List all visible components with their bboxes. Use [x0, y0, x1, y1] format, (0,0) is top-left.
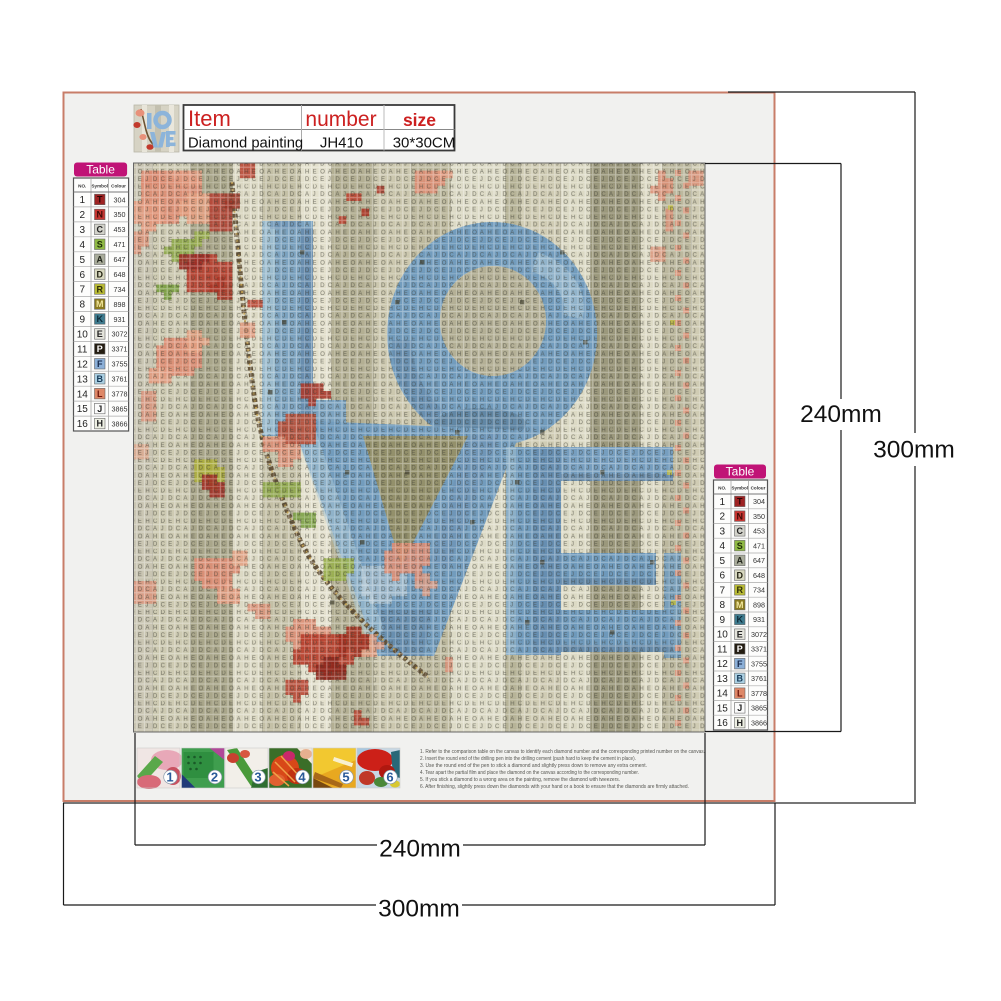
- svg-text:931: 931: [753, 615, 765, 624]
- svg-text:350: 350: [114, 210, 126, 219]
- svg-text:7: 7: [719, 585, 725, 596]
- svg-text:E: E: [737, 629, 743, 639]
- svg-text:Colour: Colour: [111, 184, 126, 189]
- svg-text:R: R: [737, 585, 744, 595]
- svg-text:647: 647: [114, 255, 126, 264]
- svg-text:3: 3: [254, 770, 261, 785]
- svg-text:F: F: [737, 659, 743, 669]
- svg-text:P: P: [737, 644, 743, 654]
- svg-text:16: 16: [717, 718, 729, 729]
- svg-text:4: 4: [719, 541, 725, 552]
- svg-text:N: N: [97, 210, 104, 220]
- svg-text:5: 5: [719, 556, 725, 567]
- svg-text:898: 898: [753, 600, 765, 609]
- svg-text:13: 13: [717, 674, 729, 685]
- svg-text:304: 304: [753, 497, 765, 506]
- svg-text:A: A: [737, 556, 744, 566]
- svg-text:size: size: [403, 110, 436, 130]
- svg-text:K: K: [737, 615, 744, 625]
- svg-text:30*30CM: 30*30CM: [393, 135, 456, 152]
- svg-text:NO.: NO.: [78, 184, 86, 189]
- svg-text:3: 3: [719, 526, 725, 537]
- svg-text:14: 14: [77, 389, 89, 400]
- svg-text:471: 471: [114, 240, 126, 249]
- svg-text:B: B: [737, 674, 744, 684]
- svg-text:647: 647: [753, 556, 765, 565]
- svg-text:3072: 3072: [751, 630, 767, 639]
- svg-text:number: number: [305, 108, 376, 131]
- svg-text:3755: 3755: [112, 360, 128, 369]
- svg-text:D: D: [737, 570, 744, 580]
- svg-text:3866: 3866: [112, 419, 128, 428]
- svg-text:3866: 3866: [751, 718, 767, 727]
- svg-text:P: P: [97, 344, 103, 354]
- svg-text:M: M: [96, 299, 104, 309]
- svg-text:931: 931: [114, 315, 126, 324]
- svg-text:J: J: [97, 404, 102, 414]
- svg-text:3761: 3761: [751, 674, 767, 683]
- svg-text:3778: 3778: [112, 389, 128, 398]
- svg-text:12: 12: [717, 659, 729, 670]
- svg-text:D: D: [97, 269, 104, 279]
- svg-text:3. Use the round end of the pe: 3. Use the round end of the pen to stick…: [420, 763, 647, 769]
- svg-text:S: S: [97, 239, 103, 249]
- svg-text:13: 13: [77, 374, 89, 385]
- svg-text:6. After finishing, slightly p: 6. After finishing, slightly press down …: [420, 784, 689, 790]
- svg-text:9: 9: [79, 315, 85, 326]
- svg-text:734: 734: [753, 586, 765, 595]
- svg-text:3371: 3371: [751, 645, 767, 654]
- svg-text:N: N: [737, 511, 744, 521]
- svg-text:3072: 3072: [112, 330, 128, 339]
- svg-text:C: C: [97, 225, 104, 235]
- svg-text:9: 9: [719, 615, 725, 626]
- svg-text:2: 2: [79, 210, 85, 221]
- svg-text:1: 1: [719, 497, 725, 508]
- svg-text:3865: 3865: [751, 704, 767, 713]
- svg-text:4. Tear apart the partial film: 4. Tear apart the partial film and place…: [420, 770, 639, 776]
- svg-text:648: 648: [753, 571, 765, 580]
- svg-text:NO.: NO.: [718, 486, 726, 491]
- svg-text:300mm: 300mm: [873, 437, 955, 464]
- svg-text:Symbol: Symbol: [91, 184, 108, 189]
- svg-text:1: 1: [166, 770, 173, 785]
- svg-text:14: 14: [717, 689, 729, 700]
- svg-text:T: T: [97, 195, 103, 205]
- svg-text:15: 15: [717, 703, 729, 714]
- svg-text:12: 12: [77, 359, 89, 370]
- svg-text:11: 11: [77, 344, 88, 355]
- svg-text:1: 1: [79, 195, 85, 206]
- svg-text:648: 648: [114, 270, 126, 279]
- svg-text:240mm: 240mm: [800, 401, 882, 428]
- svg-text:10: 10: [77, 330, 89, 341]
- svg-text:B: B: [97, 374, 104, 384]
- svg-text:5: 5: [342, 770, 349, 785]
- svg-text:T: T: [737, 497, 743, 507]
- svg-text:K: K: [97, 314, 104, 324]
- svg-text:6: 6: [719, 571, 725, 582]
- svg-text:8: 8: [719, 600, 725, 611]
- svg-text:R: R: [97, 284, 104, 294]
- svg-text:2. Insert the round end of the: 2. Insert the round end of the drilling …: [420, 756, 636, 762]
- svg-text:6: 6: [79, 270, 85, 281]
- svg-text:10: 10: [717, 630, 729, 641]
- svg-text:3761: 3761: [112, 375, 128, 384]
- svg-text:3371: 3371: [112, 345, 128, 354]
- svg-text:453: 453: [753, 527, 765, 536]
- svg-text:304: 304: [114, 195, 126, 204]
- svg-text:16: 16: [77, 419, 89, 430]
- svg-text:Table: Table: [86, 163, 115, 177]
- svg-text:H: H: [97, 419, 104, 429]
- svg-text:4: 4: [79, 240, 85, 251]
- svg-text:3778: 3778: [751, 689, 767, 698]
- svg-text:7: 7: [79, 285, 85, 296]
- svg-text:3: 3: [79, 225, 85, 236]
- svg-text:5: 5: [79, 255, 85, 266]
- svg-text:8: 8: [79, 300, 85, 311]
- svg-text:S: S: [737, 541, 743, 551]
- svg-text:3755: 3755: [751, 659, 767, 668]
- svg-text:C: C: [737, 526, 744, 536]
- svg-text:5. If you stick a diamond to a: 5. If you stick a diamond to a wrong are…: [420, 777, 620, 783]
- svg-text:M: M: [736, 600, 744, 610]
- svg-text:11: 11: [717, 644, 728, 655]
- svg-text:453: 453: [114, 225, 126, 234]
- svg-text:350: 350: [753, 512, 765, 521]
- svg-text:H: H: [737, 718, 744, 728]
- svg-text:Item: Item: [188, 106, 231, 131]
- svg-text:L: L: [97, 389, 103, 399]
- svg-text:2: 2: [719, 512, 725, 523]
- svg-text:L: L: [737, 688, 743, 698]
- svg-text:898: 898: [114, 300, 126, 309]
- svg-text:4: 4: [298, 770, 306, 785]
- svg-text:Colour: Colour: [751, 486, 766, 491]
- svg-text:Table: Table: [726, 465, 755, 479]
- svg-text:F: F: [97, 359, 103, 369]
- svg-text:240mm: 240mm: [379, 836, 461, 863]
- svg-text:Symbol: Symbol: [731, 486, 748, 491]
- svg-text:Diamond painting: Diamond painting: [188, 136, 303, 152]
- svg-text:J: J: [737, 703, 742, 713]
- svg-text:471: 471: [753, 541, 765, 550]
- svg-text:300mm: 300mm: [378, 896, 460, 923]
- svg-text:6: 6: [386, 770, 393, 785]
- svg-text:734: 734: [114, 285, 126, 294]
- svg-text:A: A: [97, 254, 104, 264]
- svg-text:2: 2: [211, 770, 218, 785]
- svg-text:3865: 3865: [112, 404, 128, 413]
- svg-text:JH410: JH410: [320, 135, 363, 152]
- svg-text:1. Refer to the comparison tab: 1. Refer to the comparison table on the …: [420, 749, 705, 755]
- svg-text:15: 15: [77, 404, 89, 415]
- svg-text:E: E: [97, 329, 103, 339]
